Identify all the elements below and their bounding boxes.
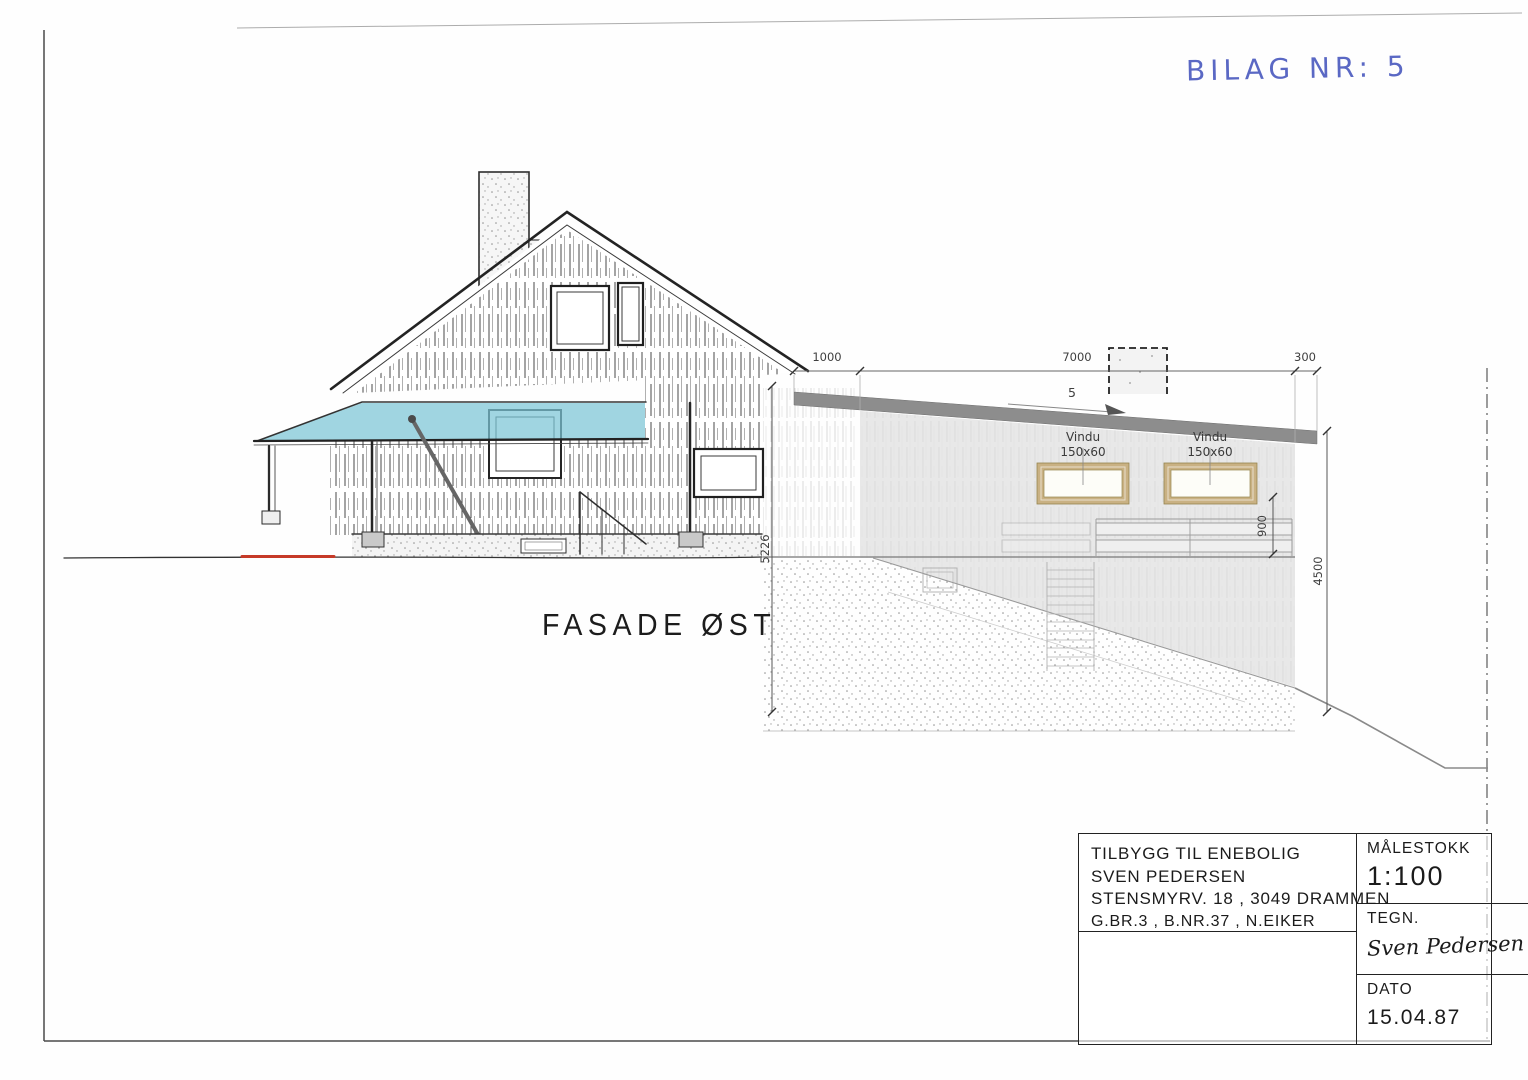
drawn-by-signature: Sven Pedersen — [1367, 932, 1525, 961]
main-floor-window — [694, 449, 763, 497]
drawing-sheet: BILAG NR: 5 FASADE ØST 1000 7000 300 5 V… — [0, 0, 1528, 1080]
gable-window-square — [551, 286, 609, 350]
window-label-2: Vindu 150x60 — [1174, 430, 1246, 460]
bilag-number-annotation: BILAG NR: 5 — [1186, 49, 1427, 87]
window-label-1: Vindu 150x60 — [1047, 430, 1119, 460]
awning — [254, 402, 648, 445]
title-block-project-info: TILBYGG TIL ENEBOLIG SVEN PEDERSEN STENS… — [1079, 834, 1356, 1044]
window-label-1-size: 150x60 — [1047, 445, 1119, 460]
scale-value: 1:100 — [1367, 861, 1524, 892]
gable-window-narrow — [618, 283, 643, 345]
dim-label-5226: 5226 — [758, 527, 772, 571]
dim-label-900: 900 — [1255, 506, 1269, 546]
title-block: TILBYGG TIL ENEBOLIG SVEN PEDERSEN STENS… — [1078, 833, 1492, 1045]
drawn-label: TEGN. — [1367, 910, 1524, 928]
window-label-2-name: Vindu — [1174, 430, 1246, 445]
drawn-by-cell: TEGN. Sven Pedersen — [1357, 903, 1528, 973]
title-block-meta: MÅLESTOKK 1:100 TEGN. Sven Pedersen DATO… — [1356, 834, 1528, 1044]
property-registration: G.BR.3 , B.NR.37 , N.EIKER — [1091, 911, 1344, 934]
existing-wall-behind-extension — [763, 388, 858, 556]
dim-label-1000: 1000 — [797, 350, 857, 364]
project-title: TILBYGG TIL ENEBOLIG — [1091, 843, 1344, 866]
window-label-1-name: Vindu — [1047, 430, 1119, 445]
house-facade — [64, 172, 858, 558]
foundation-vent — [521, 539, 566, 553]
date-cell: DATO 15.04.87 — [1357, 974, 1528, 1044]
date-label: DATO — [1367, 981, 1524, 999]
scale-label: MÅLESTOKK — [1367, 840, 1524, 858]
title-block-divider — [1079, 931, 1356, 932]
slope-label: 5 — [1060, 385, 1084, 400]
awning-blue-fill — [257, 403, 645, 441]
extension-section — [763, 348, 1488, 768]
client-name: SVEN PEDERSEN — [1091, 866, 1344, 889]
dim-label-4500: 4500 — [1311, 549, 1325, 593]
dim-label-7000: 7000 — [1047, 350, 1107, 364]
date-value: 15.04.87 — [1367, 1006, 1524, 1030]
facade-title: FASADE ØST — [542, 607, 776, 643]
window-label-2-size: 150x60 — [1174, 445, 1246, 460]
foundation — [352, 532, 762, 557]
dim-label-300: 300 — [1288, 350, 1322, 364]
project-address: STENSMYRV. 18 , 3049 DRAMMEN — [1091, 888, 1344, 911]
